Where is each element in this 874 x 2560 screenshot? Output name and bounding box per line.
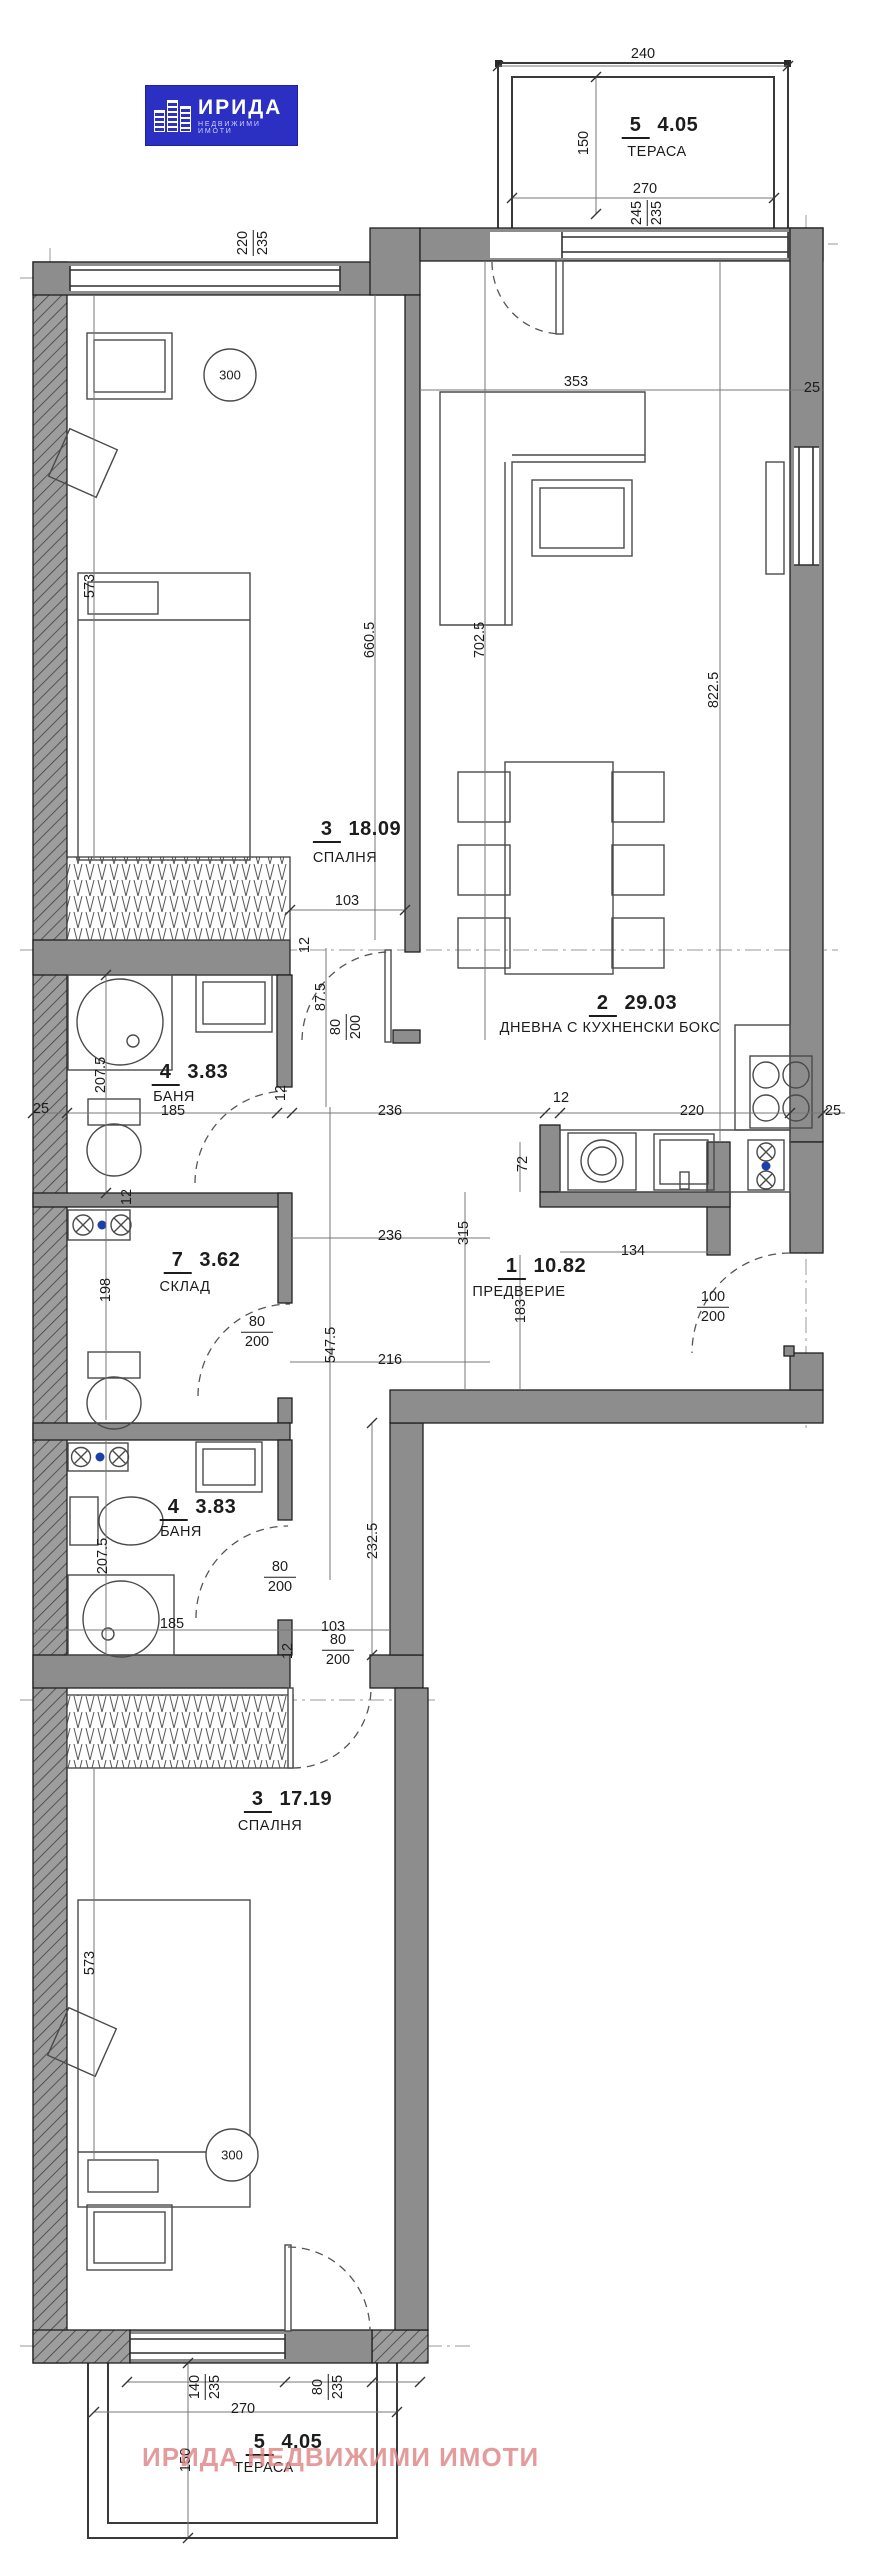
wall-storage-south (33, 1423, 290, 1440)
wall-bath2-south (33, 1655, 290, 1688)
logo-title: ИРИДА (198, 97, 289, 118)
room-name-bathroom2: БАНЯ (160, 1525, 202, 1540)
window-living (490, 232, 788, 258)
dim-wall-25-left: 25 (33, 1102, 49, 1117)
wall-storage-east-b (278, 1398, 292, 1423)
dim-wall12-a: 12 (298, 937, 313, 953)
dim-terrace-top-depth: 150 (577, 131, 592, 155)
floor-plan-page: ИРИДА НЕДВИЖИМИ ИМОТИ 54.05 ТЕРАСА 318.0… (0, 0, 874, 2560)
dim-bedroom1-window-frac: 220235 (236, 230, 271, 256)
wardrobe-bedroom1 (67, 857, 290, 940)
terrace-outlines (88, 63, 788, 2538)
fixture-storage (88, 1352, 140, 1378)
kitchen-counter-right (735, 1025, 790, 1130)
dim-terrace-bottom-width: 270 (231, 2402, 255, 2417)
dim-hall-134: 134 (621, 1244, 645, 1259)
sofa (440, 392, 645, 625)
door-leaf-bedroom2 (288, 1688, 293, 1768)
wall-bedroom2-east (395, 1688, 428, 2330)
dim-living-height: 822.5 (707, 672, 722, 708)
dim-living-353: 353 (564, 375, 588, 390)
dim-kitchen-12: 12 (553, 1091, 569, 1106)
window-living-right (794, 447, 819, 565)
room-label-bedroom2: 317.19 (244, 1789, 332, 1813)
dim-hall-216: 216 (378, 1353, 402, 1368)
door-arc-terrace-top (492, 262, 562, 334)
dim-corridor-87: 87.5 (314, 983, 329, 1011)
door-leaf-bedroom1 (385, 950, 391, 1042)
wall-right (790, 228, 823, 1142)
dim-terrace-door-frac: 245235 (630, 200, 665, 226)
door-leaf-terrace-top (556, 261, 563, 334)
logo-subtitle: НЕДВИЖИМИ ИМОТИ (198, 121, 289, 135)
room-label-bathroom1: 43.83 (152, 1062, 229, 1086)
dim-entry-door-frac: 100200 (697, 1290, 729, 1325)
ceiling-height-bedroom2: 300 (221, 2149, 243, 2162)
window-bedroom2 (130, 2334, 285, 2359)
dim-hall-236a: 236 (378, 1104, 402, 1119)
room-name-hall: ПРЕДВЕРИЕ (472, 1285, 565, 1300)
shower-bathroom1 (68, 975, 172, 1070)
wall-divider-foot (393, 1030, 420, 1043)
agency-logo: ИРИДА НЕДВИЖИМИ ИМОТИ (145, 85, 298, 146)
dim-terrace-top-width: 240 (631, 47, 655, 62)
room-name-bedroom2: СПАЛНЯ (238, 1819, 302, 1834)
ceiling-height-bedroom1: 300 (219, 369, 241, 382)
wall-right-lower-b (790, 1353, 823, 1390)
wall-mid-south (390, 1390, 823, 1423)
desk-bedroom1 (87, 333, 172, 399)
room-label-terrace-top: 54.05 (622, 115, 699, 139)
room-label-bedroom1: 318.09 (313, 819, 401, 843)
room-name-bedroom1: СПАЛНЯ (313, 851, 377, 866)
dim-hall-236b: 236 (378, 1229, 402, 1244)
dim-corridor-547: 547.5 (324, 1327, 339, 1363)
wardrobe-bedroom2 (67, 1695, 293, 1768)
room-label-storage: 73.62 (164, 1250, 241, 1274)
room-name-living: ДНЕВНА С КУХНЕНСКИ БОКС (500, 1021, 721, 1036)
wall-bed2-north-east (370, 1655, 423, 1688)
wall-bath1-south (33, 1193, 290, 1207)
dim-bed2-window-frac: 140235 (188, 2374, 223, 2400)
dim-wall12-bath1: 12 (274, 1085, 289, 1101)
dim-door-bedroom1-frac: 80200 (329, 1014, 364, 1040)
pillow-bedroom2 (88, 2160, 158, 2192)
dim-terrace-top-opening: 270 (633, 182, 657, 197)
dim-bath2-door-frac: 80200 (264, 1560, 296, 1595)
dim-bedroom1-660: 660.5 (363, 622, 378, 658)
wall-divider (405, 295, 420, 952)
door-arc-bathroom1 (195, 1091, 287, 1183)
watermark: ИРИДА НЕДВИЖИМИ ИМОТИ (142, 2442, 539, 2473)
desk-bedroom2 (87, 2205, 172, 2270)
wall-kitchen-south (540, 1192, 730, 1207)
dining-table (505, 762, 613, 974)
dim-corridor-103: 103 (335, 894, 359, 909)
toilet-bathroom1 (88, 1099, 140, 1125)
wall-storage-east-a (278, 1193, 292, 1303)
wall-south-east (372, 2330, 428, 2363)
buildings-icon (154, 100, 191, 132)
door-leaf-terrace-bottom (285, 2245, 291, 2331)
wall-divider-top (370, 228, 420, 295)
dim-living-702: 702.5 (473, 622, 488, 658)
dim-bed2-wall12: 12 (281, 1643, 296, 1659)
dim-storage-door-frac: 80200 (241, 1315, 273, 1350)
door-arc-terrace-bottom (288, 2247, 370, 2331)
wall-bath2-east-a (278, 1440, 292, 1520)
faucet (680, 1172, 689, 1189)
entry-hinge (784, 1346, 794, 1356)
wall-corridor-east (390, 1423, 423, 1655)
dim-bed2-door-frac: 80200 (322, 1633, 354, 1668)
dim-storage-198: 198 (99, 1278, 114, 1302)
dim-bath1-width: 185 (161, 1104, 185, 1119)
wall-right-lower-a (790, 1142, 823, 1253)
wall-left-exterior (33, 262, 67, 2363)
dim-hall-72: 72 (516, 1156, 531, 1172)
wall-south-west (33, 2330, 130, 2363)
wall-kitchen-stub (540, 1125, 560, 1192)
room-label-hall: 110.82 (498, 1256, 586, 1280)
dim-hall-315: 315 (457, 1221, 472, 1245)
coffee-table (532, 480, 632, 556)
dim-bed2-balcony-frac: 80235 (311, 2374, 346, 2400)
pillow (88, 582, 158, 614)
dim-kitchen-25: 25 (825, 1104, 841, 1119)
dim-wall12-b: 12 (120, 1189, 135, 1205)
dim-kitchen-width: 220 (680, 1104, 704, 1119)
dim-hall-183: 183 (514, 1299, 529, 1323)
dim-bath2-width: 185 (160, 1617, 184, 1632)
wall-bedroom1-south (33, 940, 290, 975)
kitchen-sink (654, 1134, 714, 1190)
wall-bath1-east (277, 975, 292, 1087)
dim-wall-25-right: 25 (804, 381, 820, 396)
dining-chairs (458, 772, 664, 968)
dim-bath1-depth: 207.5 (94, 1057, 109, 1093)
dim-bath2-depth: 207.5 (96, 1538, 111, 1574)
room-name-terrace-top: ТЕРАСА (627, 145, 686, 160)
dim-corridor-232: 232.5 (366, 1523, 381, 1559)
floorplan-drawing (0, 0, 874, 2560)
room-label-living: 229.03 (589, 993, 677, 1017)
dim-bedroom2-573: 573 (83, 1951, 98, 1975)
dim-bedroom1-573: 573 (83, 574, 98, 598)
bed-bedroom1 (78, 573, 250, 860)
room-label-bathroom2: 43.83 (160, 1497, 237, 1521)
tv-stand (766, 462, 784, 574)
room-name-storage: СКЛАД (160, 1280, 211, 1295)
